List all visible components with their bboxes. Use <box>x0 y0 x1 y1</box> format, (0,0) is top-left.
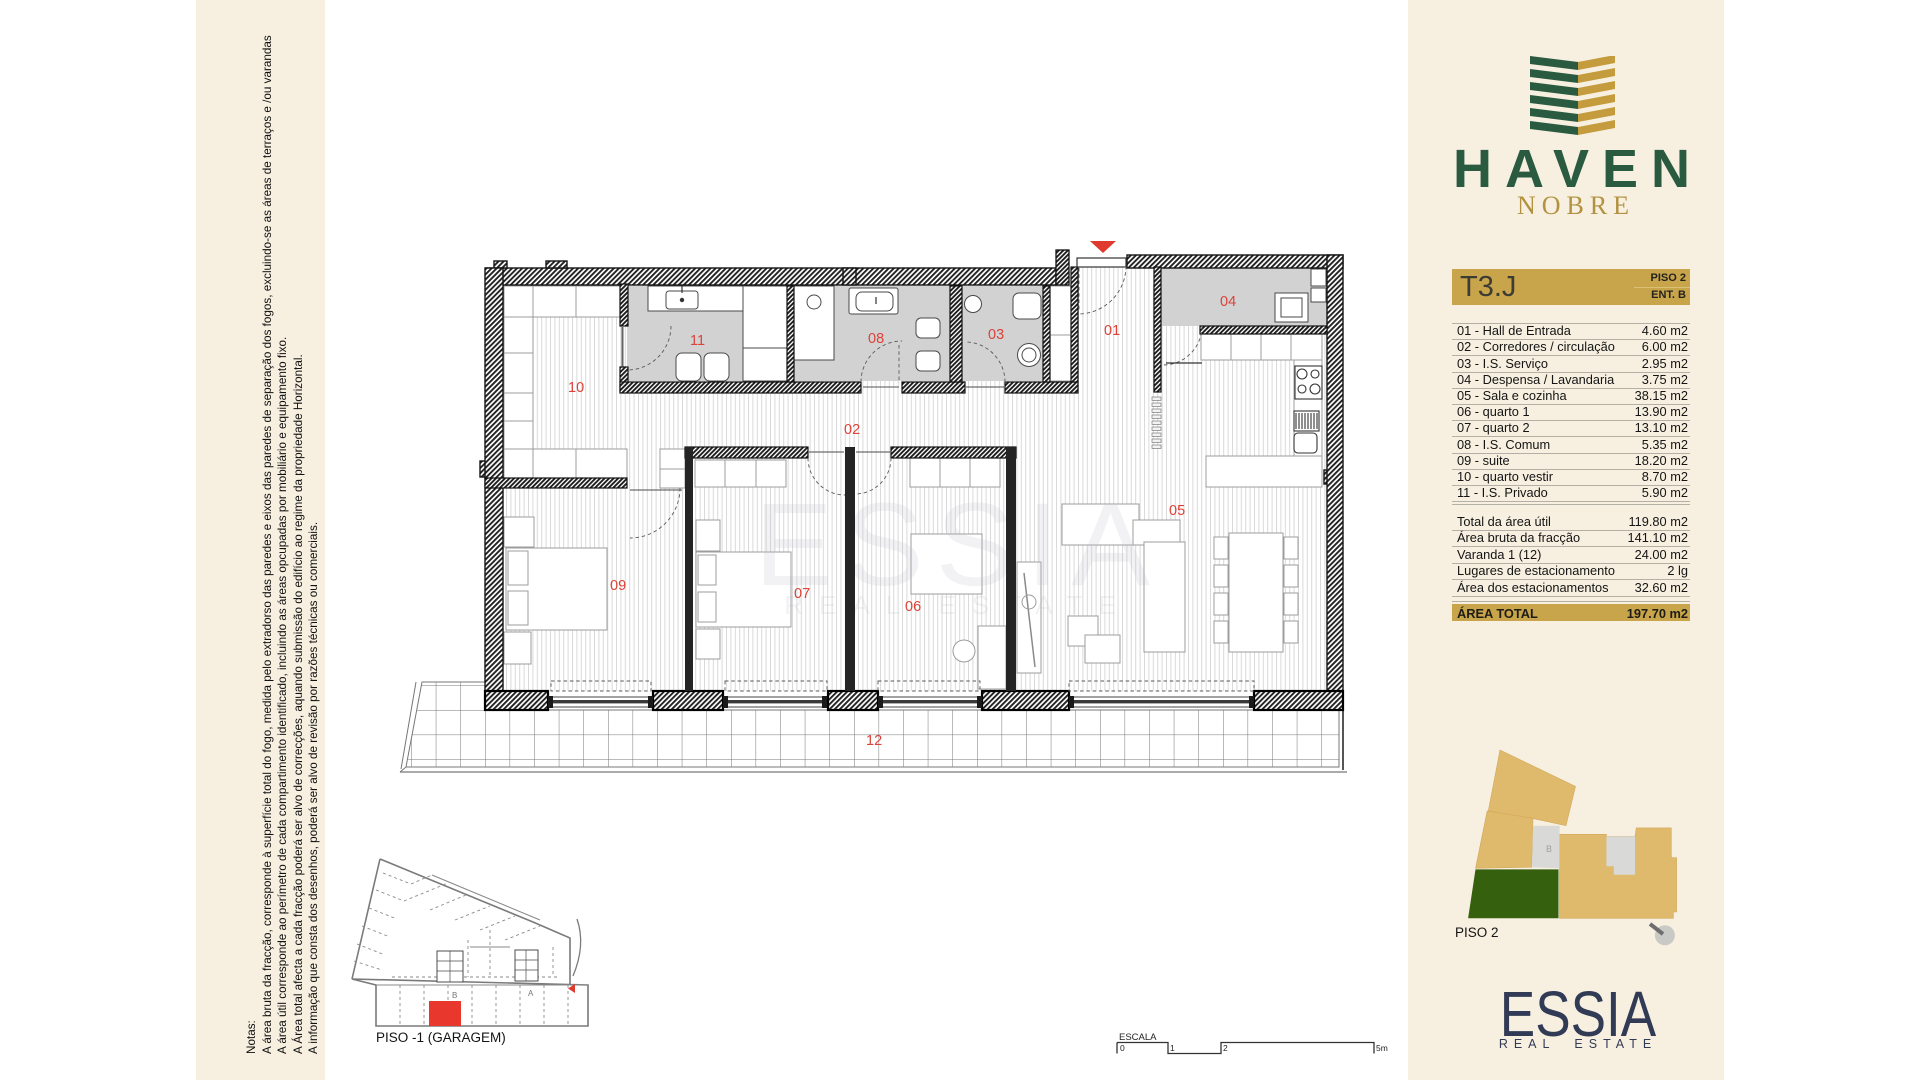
svg-text:01: 01 <box>1104 323 1120 339</box>
svg-text:05: 05 <box>1169 503 1185 519</box>
svg-text:PISO -1 (GARAGEM): PISO -1 (GARAGEM) <box>376 1030 506 1045</box>
svg-text:11: 11 <box>690 333 705 349</box>
svg-text:A: A <box>528 989 534 998</box>
svg-text:08: 08 <box>868 331 884 347</box>
svg-text:1: 1 <box>1170 1043 1175 1053</box>
svg-text:12: 12 <box>866 733 882 749</box>
svg-text:0: 0 <box>1120 1043 1125 1053</box>
svg-text:07: 07 <box>794 586 810 602</box>
svg-text:5m: 5m <box>1376 1043 1388 1053</box>
svg-text:10: 10 <box>568 380 584 396</box>
svg-text:09: 09 <box>610 578 626 594</box>
svg-text:REAL ESTATE: REAL ESTATE <box>784 590 1131 620</box>
svg-text:03: 03 <box>988 327 1004 343</box>
svg-text:B: B <box>452 991 457 1000</box>
svg-text:04: 04 <box>1220 294 1236 310</box>
svg-text:2: 2 <box>1223 1043 1228 1053</box>
svg-text:02: 02 <box>844 422 860 438</box>
svg-text:06: 06 <box>905 599 921 615</box>
svg-text:ESCALA: ESCALA <box>1119 1032 1157 1043</box>
